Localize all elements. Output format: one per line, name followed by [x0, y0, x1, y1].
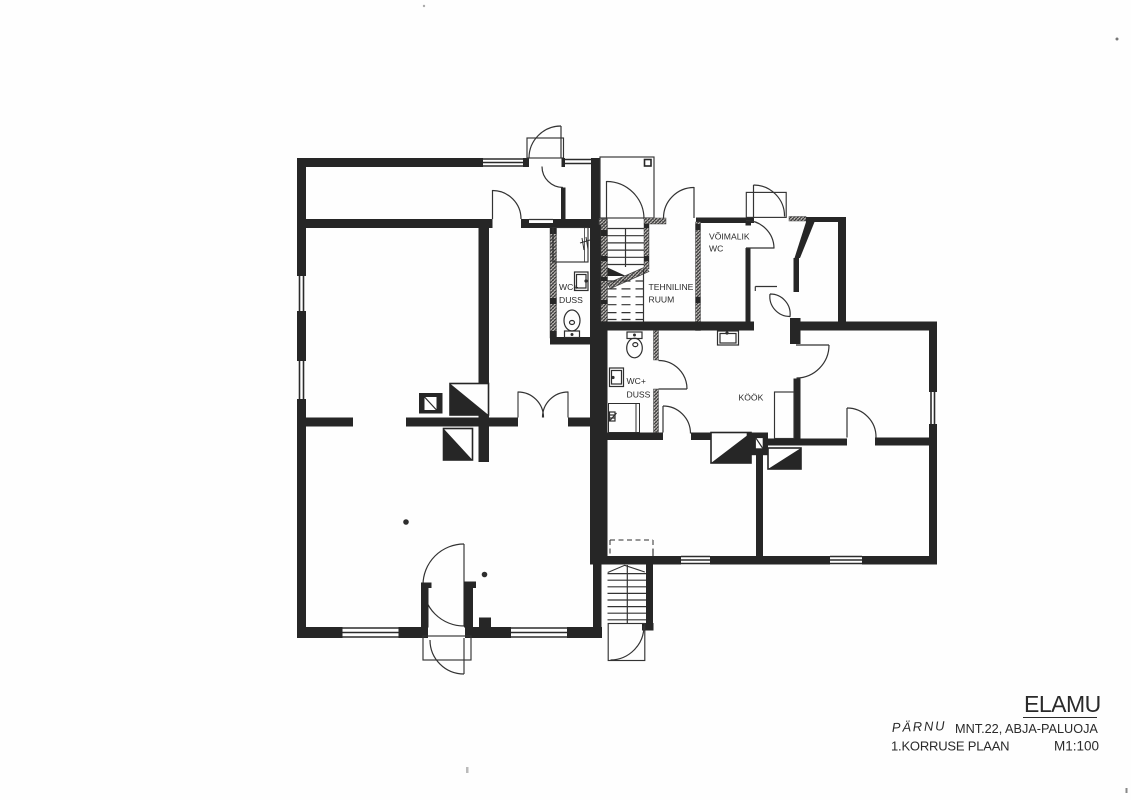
svg-text:KÖÖK: KÖÖK: [739, 393, 764, 403]
svg-text:DUSS: DUSS: [559, 295, 583, 305]
svg-text:1.KORRUSE PLAAN: 1.KORRUSE PLAAN: [891, 739, 1009, 754]
svg-text:PÄRNU: PÄRNU: [892, 718, 947, 735]
svg-text:MNT.22, ABJA-PALUOJA: MNT.22, ABJA-PALUOJA: [955, 722, 1098, 736]
svg-text:WC+: WC+: [559, 282, 578, 292]
svg-text:TEHNILINE: TEHNILINE: [649, 282, 694, 292]
svg-text:DUSS: DUSS: [627, 390, 651, 400]
svg-text:M1:100: M1:100: [1054, 739, 1099, 754]
svg-text:RUUM: RUUM: [649, 295, 675, 305]
svg-text:WC+: WC+: [627, 376, 646, 386]
svg-text:VÕIMALIK: VÕIMALIK: [709, 232, 750, 242]
svg-text:WC: WC: [709, 244, 723, 254]
svg-text:ELAMU: ELAMU: [1024, 691, 1101, 717]
